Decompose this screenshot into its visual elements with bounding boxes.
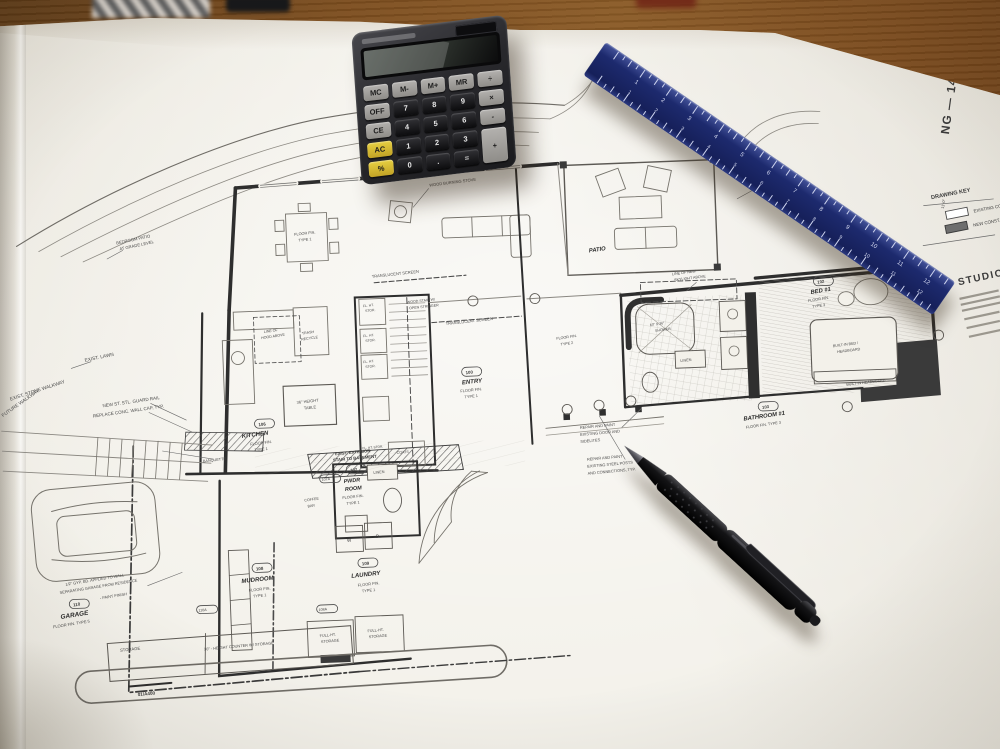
label-flht-c2: STOR.	[365, 364, 376, 369]
label-flht-b2: STOR.	[365, 338, 376, 343]
calc-key-OFF: OFF	[364, 103, 390, 121]
label-screen-2: TRANSLUCENT SCREEN	[445, 316, 493, 326]
calc-key-5: 5	[423, 114, 449, 132]
ruler-number-8-b: 8	[811, 216, 817, 223]
calc-key-6: 6	[451, 111, 477, 129]
key-new-label: NEW CONST.	[973, 217, 1000, 227]
calculator: MCM-M+MR÷OFF789×CE456-AC123+%0.=	[351, 15, 516, 186]
ruler-number-7-b: 7	[785, 198, 791, 205]
bath-num: 103	[762, 404, 770, 410]
ruler-number-5-b: 5	[732, 162, 738, 169]
ruler-number-2: 2	[660, 97, 667, 104]
table-object	[226, 0, 290, 12]
table-cloth	[92, 0, 210, 18]
mudroom-door-tag: 108A	[318, 607, 327, 612]
label-fullht-a1: FULL-HT.	[319, 633, 336, 638]
mudroom-name: MUDROOM	[241, 575, 275, 585]
ruler-number-9-b: 9	[838, 234, 844, 241]
label-exist-lawn: EXIST. LAWN	[84, 352, 115, 364]
calc-key-2: 2	[424, 133, 450, 151]
ruler-number-12: 12	[922, 278, 931, 287]
label-flht-a2: STOR.	[365, 308, 376, 313]
entry-type: TYPE 1	[464, 393, 478, 399]
table-object-red	[636, 0, 696, 8]
ruler-number-4: 4	[712, 134, 719, 141]
calc-key-0: 0	[397, 156, 423, 174]
ruler-number-1: 1	[633, 79, 640, 86]
garage-num: 110	[73, 601, 81, 607]
kitchen-num: 106	[258, 421, 266, 427]
calc-key-9: 9	[450, 92, 476, 110]
label-floor-fin2-b: TYPE 2	[560, 341, 573, 347]
entry-num: 100	[465, 369, 473, 375]
pwdr-tag: 107A	[321, 477, 330, 482]
calc-key-%: %	[368, 159, 394, 177]
pen-tip	[621, 442, 643, 463]
laundry-floor: FLOOR FIN.	[357, 580, 379, 587]
mudroom-floor: FLOOR FIN.	[249, 585, 271, 592]
calc-key-AC: AC	[367, 140, 393, 158]
label-repair-door-3: SIDELITES	[580, 437, 601, 444]
ruler-number-2-b: 2	[653, 108, 659, 115]
laundry-name: LAUNDRY	[351, 571, 382, 580]
drawing-key-title: DRAWING KEY	[931, 188, 972, 202]
entry-area	[297, 169, 537, 567]
dining-floor-fin-a: FLOOR FIN.	[294, 231, 316, 237]
ruler-number-11-b: 11	[889, 270, 897, 278]
calc-key-MC: MC	[363, 84, 389, 102]
calc-key--: -	[480, 107, 506, 125]
pwdr-num: 107	[350, 467, 358, 473]
label-stone-walkway: EXIST. STONE WALKWAY	[9, 379, 66, 403]
label-fullht-b2: STORAGE	[369, 634, 388, 640]
label-screen-1: TRANSLUCENT SCREEN	[372, 269, 420, 279]
label-floor-fin2-a: FLOOR FIN.	[556, 334, 577, 341]
mudroom-num: 108	[256, 566, 264, 572]
dining-floor-fin-b: TYPE 1	[298, 237, 311, 242]
pwdr-name-2: ROOM	[345, 485, 363, 493]
calc-key-1: 1	[396, 137, 422, 155]
ruler-number-9: 9	[844, 224, 851, 231]
patio-area	[560, 156, 721, 277]
ruler-number-10-b: 10	[863, 252, 871, 260]
calc-key-MR: MR	[449, 73, 475, 91]
ruler-number-5: 5	[739, 152, 746, 159]
calc-key-3: 3	[453, 130, 479, 148]
garage-door-tag: 110A	[198, 608, 207, 613]
edge-title: NG — 14 OCT 2025	[938, 10, 969, 135]
calc-key-M+: M+	[420, 77, 446, 95]
mudroom-type: TYPE 1	[253, 592, 267, 598]
pwdr-name-1: PWDR	[343, 477, 360, 485]
garage-floor: FLOOR FIN. TYPE 5	[53, 618, 91, 629]
laundry-type: TYPE 1	[362, 587, 376, 593]
entry-name: ENTRY	[462, 378, 484, 386]
ruler-number-3: 3	[686, 116, 693, 123]
pwdr-type: TYPE 1	[346, 501, 359, 506]
calc-key-×: ×	[479, 88, 505, 106]
calc-key-7: 7	[393, 99, 419, 117]
ruler-number-12-b: 12	[916, 288, 924, 296]
label-repair-door-2: EXISTING DOOR AND	[580, 428, 620, 437]
calculator-keypad: MCM-M+MR÷OFF789×CE456-AC123+%0.=	[363, 69, 508, 177]
ruler-number-10: 10	[869, 242, 878, 251]
label-coffee-1: COFFEE	[304, 496, 320, 502]
label-coffee-2: BAR	[307, 503, 315, 508]
calc-key-.: .	[425, 152, 451, 170]
label-stair-2: OPEN STRINGER	[409, 303, 439, 310]
ruler-number-6-b: 6	[758, 180, 764, 187]
bath-floor: FLOOR FIN. TYPE 3	[746, 421, 782, 430]
section-marker: 01/A400	[138, 691, 156, 698]
calc-key-=: =	[454, 149, 480, 167]
key-existing-label: EXISTING CONST.	[973, 201, 1000, 213]
label-dim-11-0: 11'-0"	[940, 198, 947, 209]
label-trash-2: RECYCLE	[301, 335, 319, 341]
ruler-number-6: 6	[765, 170, 772, 177]
label-gyp-3: - PAINT FINISH	[99, 591, 127, 600]
calc-key-+: +	[481, 126, 508, 163]
ruler-number-11: 11	[896, 260, 905, 269]
title-block-firm: STUDIO	[957, 268, 1000, 289]
calc-key-÷: ÷	[477, 69, 503, 87]
ruler-number-4-b: 4	[706, 144, 712, 151]
label-high-table-1: 36" HEIGHT	[296, 397, 319, 404]
ruler-number-7: 7	[791, 188, 798, 195]
patio-name: PATIO	[589, 246, 607, 254]
label-fullht-a2: STORAGE	[321, 638, 340, 644]
calc-key-CE: CE	[366, 121, 392, 139]
stair-core	[355, 295, 435, 468]
entry-floor: FLOOR FIN.	[460, 386, 482, 393]
ruler-number-1-b: 1	[627, 89, 633, 96]
label-trash-1: TRASH	[302, 330, 315, 336]
photo-scene: { "sheet": { "edge_title": "NG — 14 OCT …	[0, 0, 1000, 749]
label-wood-stove: WOOD BURNING STOVE	[429, 177, 477, 188]
ruler-number-8: 8	[818, 206, 825, 213]
label-high-table-2: TABLE	[304, 404, 317, 410]
calc-key-4: 4	[394, 118, 420, 136]
label-fullht-b1: FULL-HT.	[367, 628, 384, 633]
pwdr-floor: FLOOR FIN.	[342, 494, 364, 500]
calc-key-M-: M-	[392, 80, 418, 98]
calc-key-8: 8	[421, 95, 447, 113]
ruler-number-3-b: 3	[679, 126, 685, 133]
laundry-num: 109	[362, 561, 370, 567]
